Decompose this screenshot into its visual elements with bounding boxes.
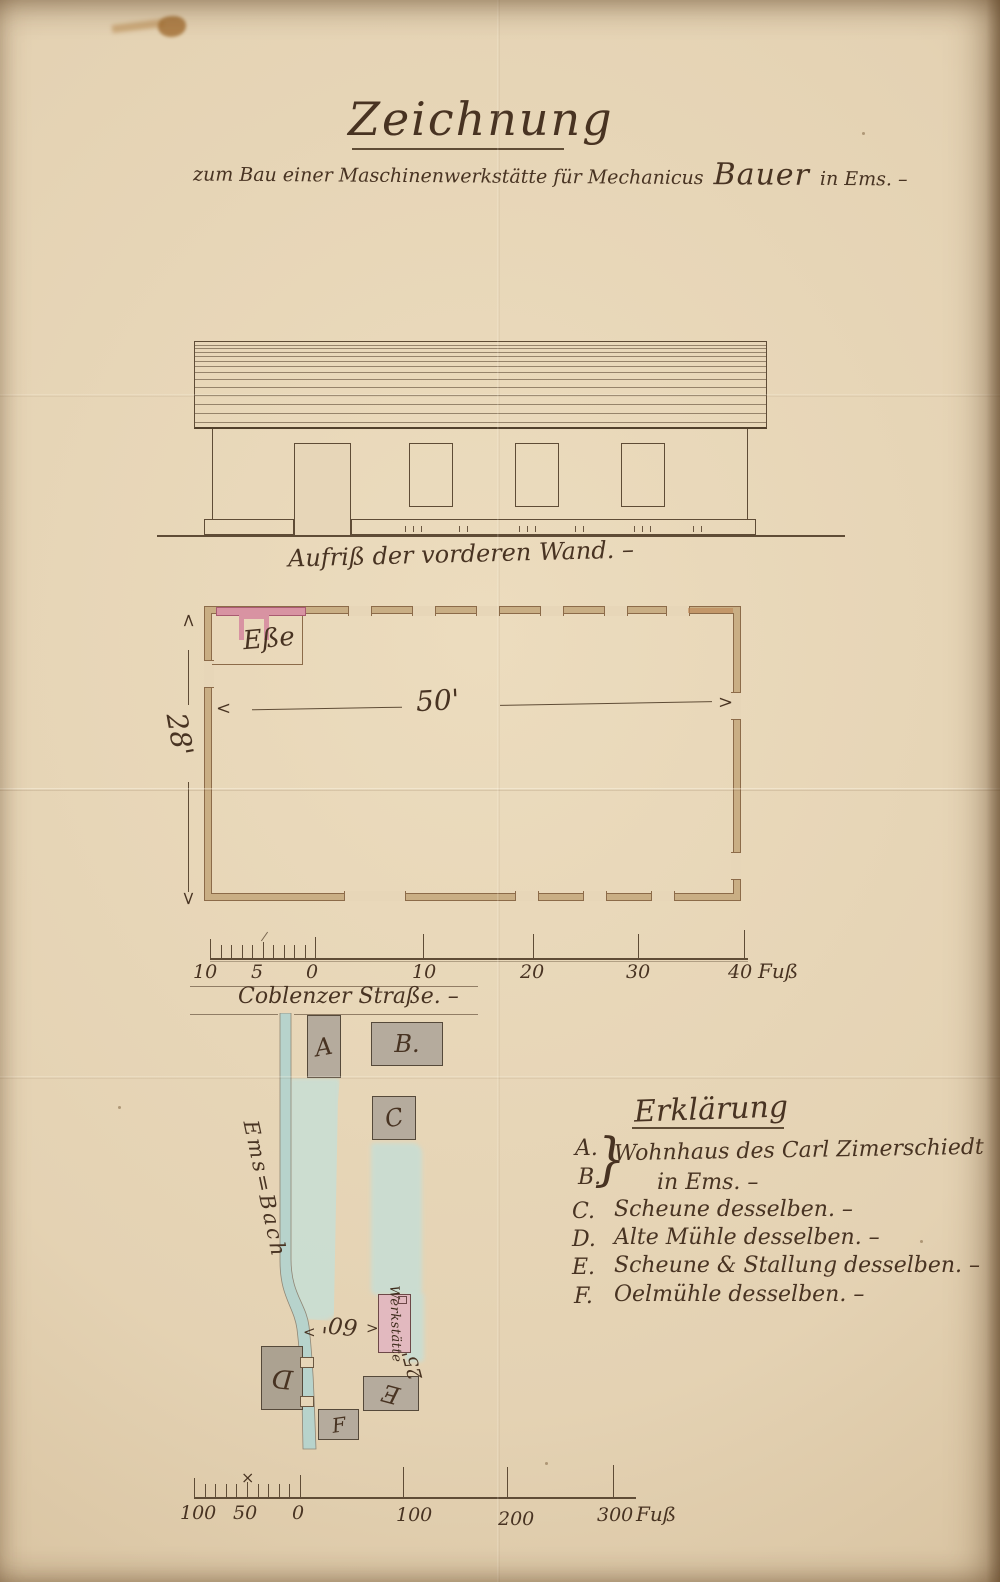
subtitle-client-name: Bauer bbox=[713, 157, 810, 193]
scale-large-label: 100 bbox=[180, 1502, 216, 1524]
roof-board-line bbox=[195, 404, 766, 405]
base-dash bbox=[527, 526, 528, 532]
scale-small-label: 20 bbox=[520, 961, 544, 983]
building-a: A bbox=[307, 1015, 341, 1078]
scale-large-tick bbox=[215, 1484, 216, 1497]
sluice-gate bbox=[300, 1357, 314, 1368]
scale-small-label: 5 bbox=[251, 961, 263, 983]
roof-board-line bbox=[195, 361, 766, 362]
roof-board-line bbox=[195, 413, 766, 414]
scanned-drawing-sheet: Zeichnung zum Bau einer Maschinenwerkstä… bbox=[0, 0, 1000, 1582]
building-d-label: D bbox=[270, 1362, 293, 1394]
ground-line bbox=[157, 535, 845, 537]
legend-key-c: C. bbox=[572, 1199, 595, 1224]
subtitle-post: in Ems. – bbox=[820, 168, 908, 191]
plan-window-opening bbox=[348, 606, 372, 616]
scale-small-label: 0 bbox=[306, 961, 318, 983]
roof-board-line bbox=[195, 345, 766, 346]
base-dash bbox=[519, 526, 520, 532]
legend-text-ab2: in Ems. – bbox=[657, 1170, 758, 1195]
dim-line-vertical bbox=[188, 650, 189, 705]
site-dim-arrow-left: < bbox=[303, 1323, 316, 1341]
base-dash bbox=[459, 526, 460, 532]
legend-text-c: Scheune desselben. – bbox=[614, 1197, 853, 1222]
legend-text-f: Oelmühle desselben. – bbox=[614, 1282, 864, 1307]
forge-label: Eße bbox=[242, 622, 296, 656]
elevation-window bbox=[515, 443, 559, 507]
scale-small-tick bbox=[221, 945, 222, 958]
elevation-wall bbox=[212, 429, 748, 519]
site-width-dimension: 60' bbox=[321, 1310, 359, 1340]
workshop-chimney-notch bbox=[398, 1296, 407, 1304]
base-dash bbox=[634, 526, 635, 532]
scale-small-major-tick bbox=[423, 934, 424, 958]
roof-board-line bbox=[195, 352, 766, 353]
fold-crease bbox=[0, 1076, 1000, 1079]
legend-key-e: E. bbox=[572, 1255, 595, 1280]
base-dash bbox=[467, 526, 468, 532]
scale-large-label: 100 bbox=[396, 1504, 432, 1526]
roof-board-line bbox=[195, 379, 766, 380]
roof-board-line bbox=[195, 395, 766, 396]
base-dash bbox=[642, 526, 643, 532]
scale-large-tick bbox=[258, 1484, 259, 1497]
page-title: Zeichnung bbox=[348, 92, 614, 146]
scale-large-tick bbox=[236, 1484, 237, 1497]
scale-large-tick bbox=[300, 1475, 301, 1497]
wall-tint-segment bbox=[688, 608, 733, 613]
base-dash bbox=[535, 526, 536, 532]
scale-large-tick bbox=[194, 1478, 195, 1497]
scale-small-tick bbox=[273, 945, 274, 958]
plan-window-opening bbox=[604, 606, 628, 616]
elevation-base-left bbox=[204, 519, 294, 535]
scale-small-major-tick bbox=[744, 930, 745, 958]
title-underline bbox=[352, 148, 564, 150]
paper-speck bbox=[920, 1240, 923, 1243]
roof-board-line bbox=[195, 422, 766, 423]
legend-text-d: Alte Mühle desselben. – bbox=[614, 1225, 880, 1250]
building-b-label: B. bbox=[394, 1030, 419, 1058]
site-dim-arrow-right: > bbox=[366, 1319, 379, 1337]
scale-small-tick bbox=[263, 942, 264, 958]
building-e: E bbox=[363, 1376, 419, 1411]
scale-small-tick bbox=[252, 945, 253, 958]
building-f: F bbox=[318, 1409, 359, 1440]
base-dash bbox=[405, 526, 406, 532]
paper-speck bbox=[118, 1106, 121, 1109]
scale-small-tick bbox=[242, 945, 243, 958]
roof-board-line bbox=[195, 366, 766, 367]
scale-small-label: 10 bbox=[412, 961, 436, 983]
channel-wash bbox=[371, 1143, 422, 1295]
plan-window-opening bbox=[651, 891, 675, 901]
scale-large-unit: Fuß bbox=[636, 1502, 676, 1526]
scale-flag bbox=[261, 932, 268, 942]
building-f-label: F bbox=[330, 1412, 347, 1438]
scale-small-major-tick bbox=[638, 934, 639, 958]
base-dash bbox=[583, 526, 584, 532]
scale-small-tick bbox=[305, 945, 306, 958]
scale-small-tick bbox=[284, 945, 285, 958]
base-dash bbox=[575, 526, 576, 532]
dim-arrow-up: < bbox=[178, 613, 199, 628]
scale-large-tick bbox=[247, 1482, 248, 1497]
plan-depth-dimension: 28' bbox=[160, 710, 200, 758]
base-dash bbox=[650, 526, 651, 532]
dim-arrow-down: < bbox=[178, 891, 199, 906]
elevation-window bbox=[409, 443, 453, 507]
plan-window-opening bbox=[666, 606, 690, 616]
scale-large-tick bbox=[268, 1484, 269, 1497]
plan-window-opening bbox=[515, 891, 539, 901]
scale-bar-small bbox=[210, 958, 748, 960]
base-dash bbox=[413, 526, 414, 532]
paper-speck bbox=[545, 1462, 548, 1465]
scale-large-tick bbox=[289, 1484, 290, 1497]
subtitle-pre: zum Bau einer Maschinenwerkstätte für Me… bbox=[193, 164, 704, 190]
scale-large-label: 300 bbox=[597, 1504, 633, 1526]
scale-small-tick bbox=[231, 945, 232, 958]
roof-board-line bbox=[195, 372, 766, 373]
base-dash bbox=[693, 526, 694, 532]
subtitle: zum Bau einer Maschinenwerkstätte für Me… bbox=[193, 154, 908, 194]
ink-stain-blob bbox=[158, 16, 186, 37]
elevation-base-right bbox=[351, 519, 756, 535]
legend-key-d: D. bbox=[572, 1227, 596, 1252]
legend-key-f: F. bbox=[574, 1284, 593, 1309]
building-d: D bbox=[261, 1346, 303, 1410]
plan-window-opening bbox=[540, 606, 564, 616]
base-dash bbox=[421, 526, 422, 532]
elevation-door bbox=[294, 443, 351, 535]
building-a-label: A bbox=[313, 1031, 335, 1062]
scale-large-major-tick bbox=[613, 1465, 614, 1497]
scale-small-tick bbox=[315, 937, 316, 958]
scale-large-label: 0 bbox=[292, 1502, 304, 1524]
legend-title-underline bbox=[632, 1127, 784, 1129]
legend-text-e: Scheune & Stallung desselben. – bbox=[614, 1253, 980, 1278]
plan-window-opening bbox=[731, 852, 741, 880]
dim-arrow-right: > bbox=[718, 692, 733, 713]
plan-door-opening bbox=[344, 891, 406, 901]
roof-board-line bbox=[195, 348, 766, 349]
roof-board-line bbox=[195, 387, 766, 388]
scale-large-major-tick bbox=[507, 1467, 508, 1497]
scale-bar-small-shadowline bbox=[210, 961, 748, 962]
scale-small-tick bbox=[210, 939, 211, 958]
plan-window-opening bbox=[476, 606, 500, 616]
scale-large-label: 50 bbox=[233, 1502, 257, 1524]
scale-large-tick bbox=[226, 1484, 227, 1497]
building-c-label: C bbox=[382, 1102, 406, 1133]
roof-board-line bbox=[195, 356, 766, 357]
legend-text-ab: Wohnhaus des Carl Zimerschiedt bbox=[614, 1135, 984, 1166]
plan-window-opening bbox=[412, 606, 436, 616]
plan-window-opening bbox=[583, 891, 607, 901]
scale-small-label: 10 bbox=[193, 961, 217, 983]
scale-small-tick bbox=[294, 945, 295, 958]
scale-large-major-tick bbox=[403, 1467, 404, 1497]
plan-width-dimension: 50' bbox=[415, 683, 460, 718]
scale-bar-large bbox=[194, 1497, 636, 1499]
ink-stain bbox=[112, 19, 165, 33]
scale-large-label: 200 bbox=[498, 1508, 534, 1530]
building-e-label: E bbox=[379, 1378, 403, 1410]
scale-large-tick bbox=[279, 1484, 280, 1497]
legend-title: Erklärung bbox=[633, 1089, 788, 1129]
elevation-window bbox=[621, 443, 665, 507]
sluice-gate bbox=[300, 1396, 314, 1407]
elevation-caption: Aufriß der vorderen Wand. – bbox=[288, 535, 635, 572]
building-c: C bbox=[372, 1096, 416, 1140]
scale-large-tick bbox=[205, 1484, 206, 1497]
street-label: Coblenzer Straße. – bbox=[238, 984, 459, 1009]
building-b: B. bbox=[371, 1022, 443, 1066]
scale-small-unit: Fuß bbox=[758, 959, 798, 983]
dim-line-vertical bbox=[188, 782, 189, 892]
scale-small-label: 30 bbox=[626, 961, 650, 983]
scale-small-major-tick bbox=[533, 934, 534, 958]
base-dash bbox=[701, 526, 702, 532]
dim-arrow-left: < bbox=[216, 698, 231, 719]
elevation-roof bbox=[194, 341, 767, 429]
paper-speck bbox=[862, 132, 865, 135]
scale-small-label: 40 bbox=[728, 961, 752, 983]
